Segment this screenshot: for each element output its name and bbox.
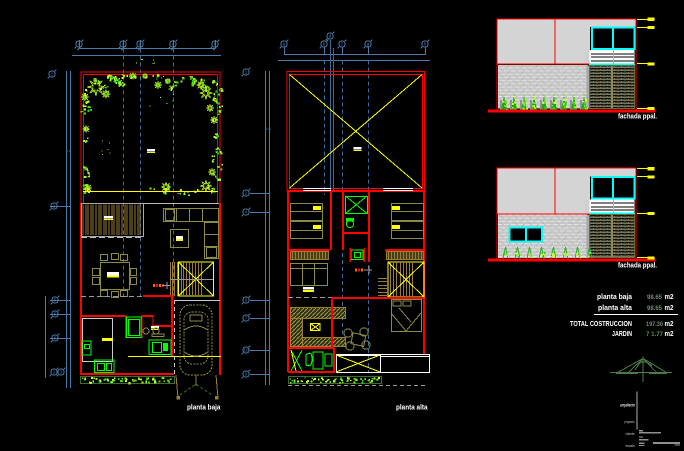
svg-text:10: 10 bbox=[243, 348, 249, 353]
svg-text:planta baja: planta baja bbox=[187, 403, 221, 412]
svg-text:m2: m2 bbox=[665, 294, 674, 301]
svg-text:98.65: 98.65 bbox=[647, 294, 662, 301]
svg-text:m2: m2 bbox=[665, 305, 674, 312]
svg-text:proyecto: proyecto bbox=[625, 420, 635, 424]
svg-text:9.8: 9.8 bbox=[66, 148, 72, 153]
svg-text:TOTAL COSTRUCCION: TOTAL COSTRUCCION bbox=[570, 319, 632, 328]
svg-text:planta baja: planta baja bbox=[597, 292, 633, 301]
svg-text:fachada ppal.: fachada ppal. bbox=[618, 263, 657, 270]
svg-text:9.8: 9.8 bbox=[265, 126, 271, 131]
svg-text:m2: m2 bbox=[665, 331, 674, 338]
svg-text:m2: m2 bbox=[665, 321, 674, 328]
svg-text:escala: escala bbox=[626, 444, 635, 448]
svg-text:197.30: 197.30 bbox=[646, 321, 663, 328]
svg-text:planta alta: planta alta bbox=[396, 403, 428, 412]
svg-text:98.65: 98.65 bbox=[647, 305, 662, 312]
svg-text:7 1.77: 7 1.77 bbox=[646, 331, 663, 338]
svg-text:planta alta: planta alta bbox=[598, 303, 633, 312]
svg-text:fachada ppal.: fachada ppal. bbox=[618, 114, 657, 121]
svg-text:cliente: cliente bbox=[626, 432, 635, 436]
svg-text:arquitecto: arquitecto bbox=[620, 402, 635, 407]
svg-text:JARDIN: JARDIN bbox=[612, 329, 632, 338]
